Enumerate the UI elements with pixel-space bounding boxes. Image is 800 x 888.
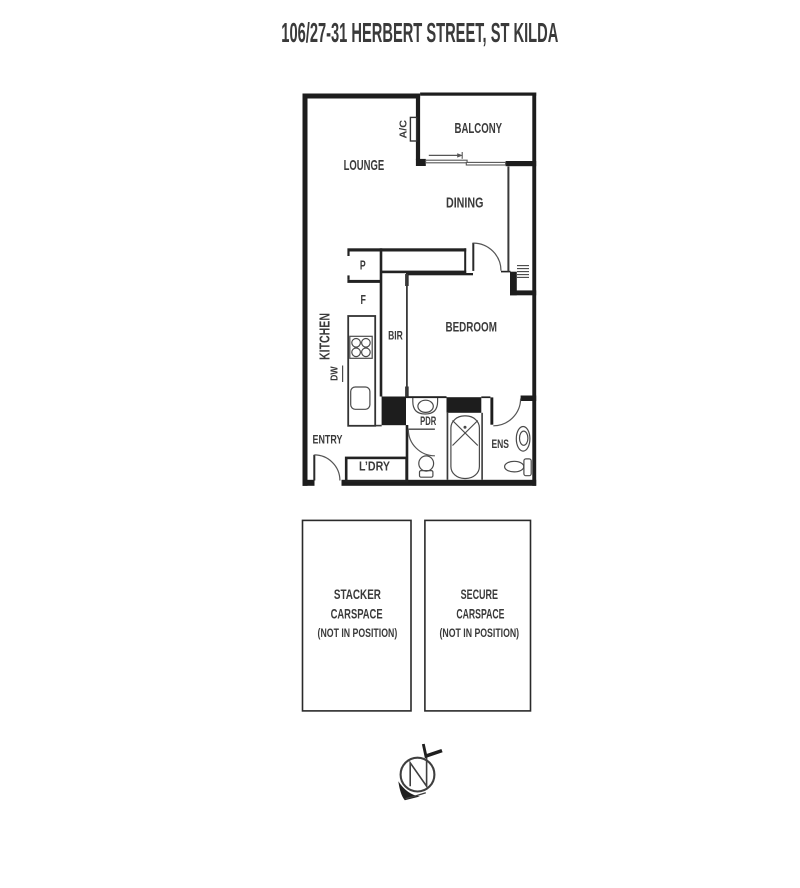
svg-text:106/27-31 HERBERT STREET, ST K: 106/27-31 HERBERT STREET, ST KILDA xyxy=(281,17,558,48)
svg-text:STACKER: STACKER xyxy=(334,586,381,602)
svg-text:CARSPACE: CARSPACE xyxy=(331,605,383,621)
svg-text:F: F xyxy=(361,293,367,307)
svg-text:A/C: A/C xyxy=(398,120,410,139)
svg-text:ENS: ENS xyxy=(491,439,509,451)
svg-text:L’DRY: L’DRY xyxy=(359,459,391,473)
svg-text:DW: DW xyxy=(329,366,341,381)
svg-text:(NOT IN POSITION): (NOT IN POSITION) xyxy=(440,626,520,640)
svg-text:SECURE: SECURE xyxy=(461,586,498,602)
svg-text:DINING: DINING xyxy=(446,194,483,211)
svg-text:KITCHEN: KITCHEN xyxy=(318,313,334,360)
svg-text:BALCONY: BALCONY xyxy=(455,121,503,137)
svg-text:P: P xyxy=(360,259,366,273)
svg-text:LOUNGE: LOUNGE xyxy=(344,157,385,174)
svg-text:BEDROOM: BEDROOM xyxy=(446,318,497,334)
svg-text:(NOT IN POSITION): (NOT IN POSITION) xyxy=(318,626,398,640)
svg-text:PDR: PDR xyxy=(420,416,437,428)
svg-text:ENTRY: ENTRY xyxy=(313,433,343,447)
svg-text:CARSPACE: CARSPACE xyxy=(456,605,504,621)
svg-text:BIR: BIR xyxy=(388,331,403,343)
